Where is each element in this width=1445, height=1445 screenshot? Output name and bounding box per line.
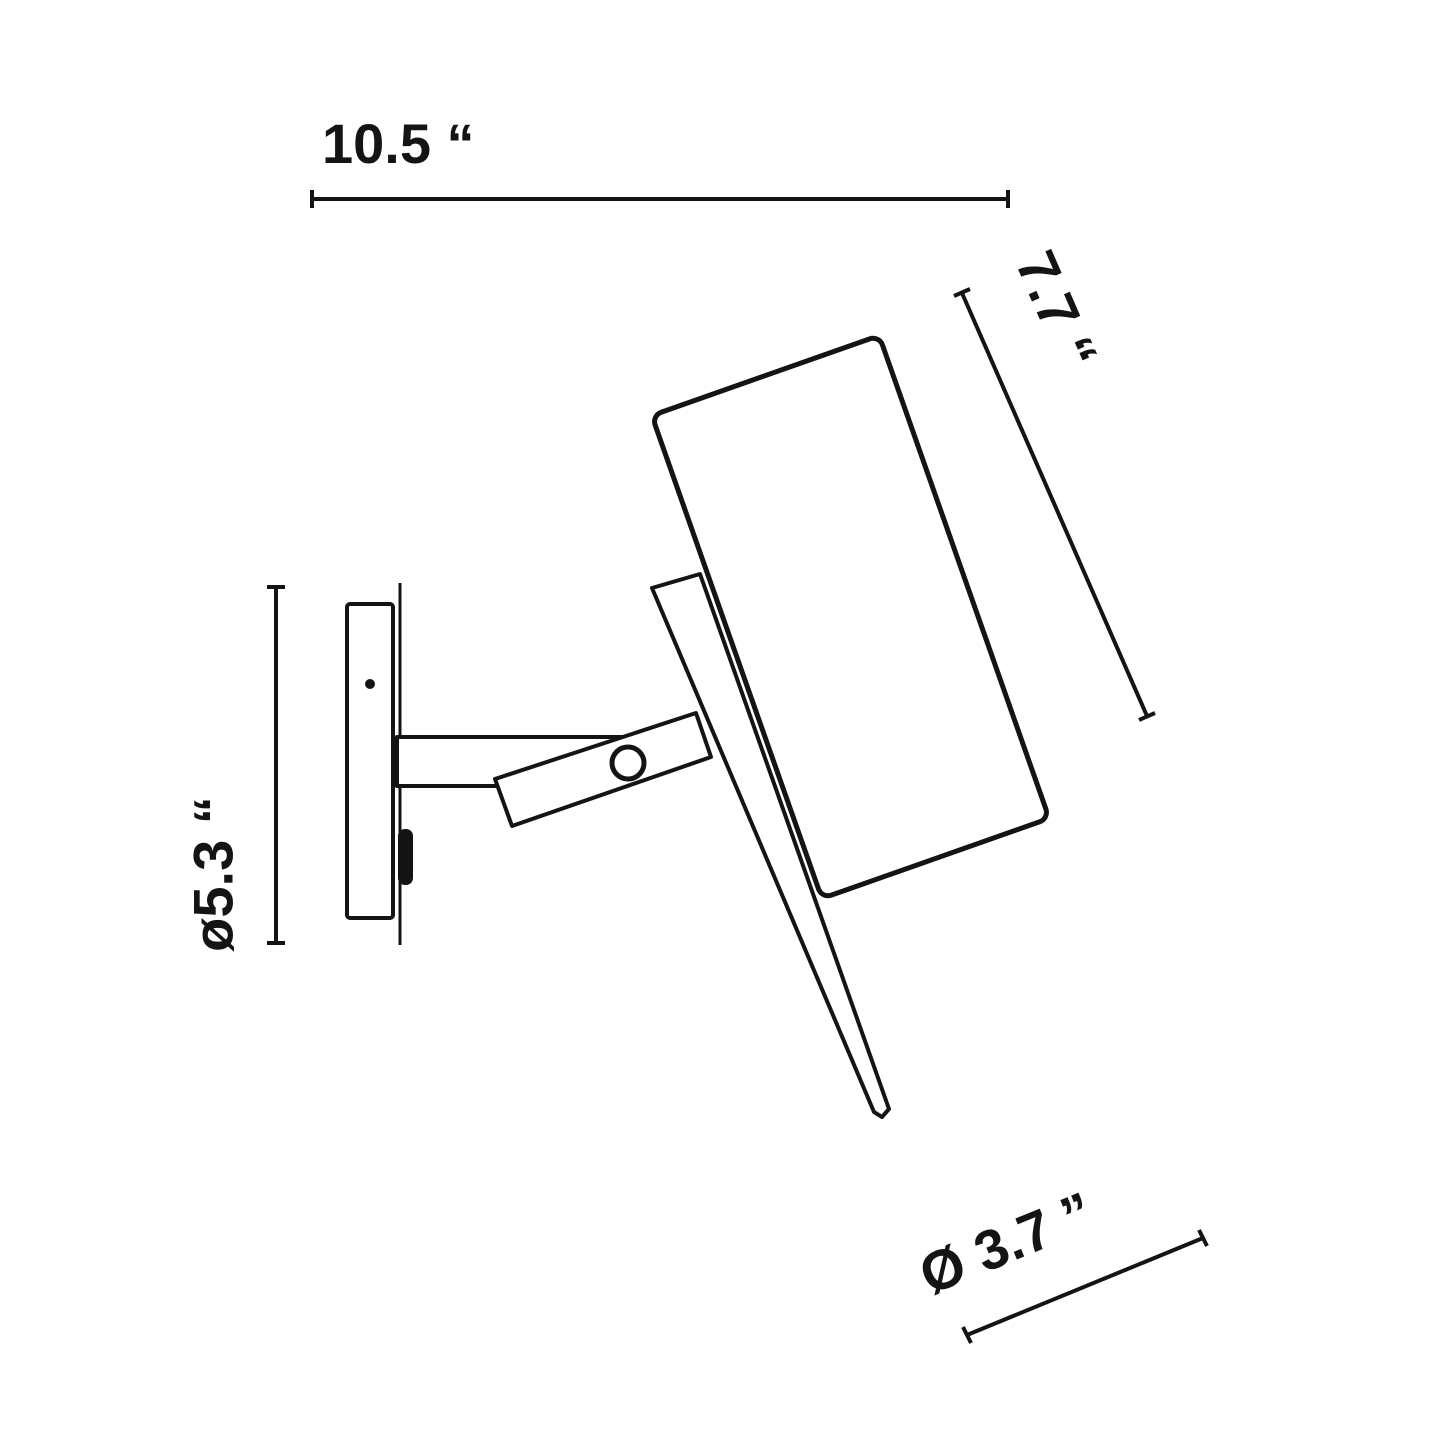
dim-left-label: ø5.3 “: [182, 796, 245, 952]
wall-plate: [347, 604, 393, 918]
dim-left: ø5.3 “: [182, 587, 286, 952]
dim-bottom-label: Ø 3.7 ”: [911, 1180, 1102, 1307]
arm-clamp: [495, 713, 711, 826]
mounting-screw-icon: [365, 679, 375, 689]
dim-bottom: Ø 3.7 ”: [911, 1180, 1207, 1343]
drawing-canvas: 10.5 “ 7.7 “ ø5.3 “ Ø 3.7 ”: [0, 0, 1445, 1445]
adjustment-knob-icon: [612, 747, 644, 779]
dimension-drawing-page: 10.5 “ 7.7 “ ø5.3 “ Ø 3.7 ”: [0, 0, 1445, 1445]
dim-right-label: 7.7 “: [1004, 242, 1110, 378]
dim-top: 10.5 “: [312, 112, 1008, 208]
cable-grommet-icon: [398, 829, 413, 885]
dim-top-label: 10.5 “: [322, 112, 475, 175]
